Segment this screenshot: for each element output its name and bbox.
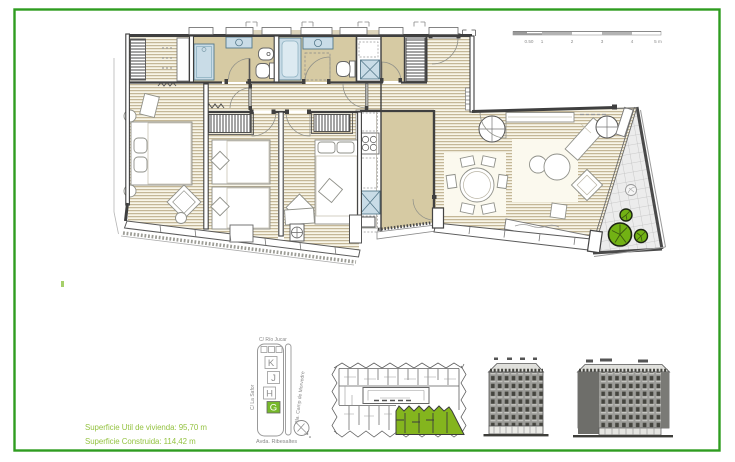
svg-text:J: J — [271, 373, 276, 384]
svg-text:0.50: 0.50 — [525, 39, 534, 44]
svg-text:Avda. Ribesaltes: Avda. Ribesaltes — [256, 439, 297, 445]
svg-text:K: K — [268, 358, 275, 369]
svg-text:4: 4 — [631, 39, 634, 44]
svg-text:1: 1 — [541, 39, 544, 44]
svg-text:C/ Río Jucar: C/ Río Jucar — [259, 337, 287, 343]
svg-text:Superficie Util de vivienda: 9: Superficie Util de vivienda: 95,70 m — [85, 423, 207, 432]
svg-text:Superficie Construida: 114,42: Superficie Construida: 114,42 m — [85, 437, 196, 446]
svg-text:C/ La Safor: C/ La Safor — [250, 384, 256, 410]
svg-text:H: H — [266, 389, 273, 400]
svg-text:3: 3 — [601, 39, 604, 44]
svg-text:2: 2 — [571, 39, 574, 44]
svg-text:G: G — [270, 403, 277, 414]
svg-text:5 m: 5 m — [654, 39, 662, 44]
